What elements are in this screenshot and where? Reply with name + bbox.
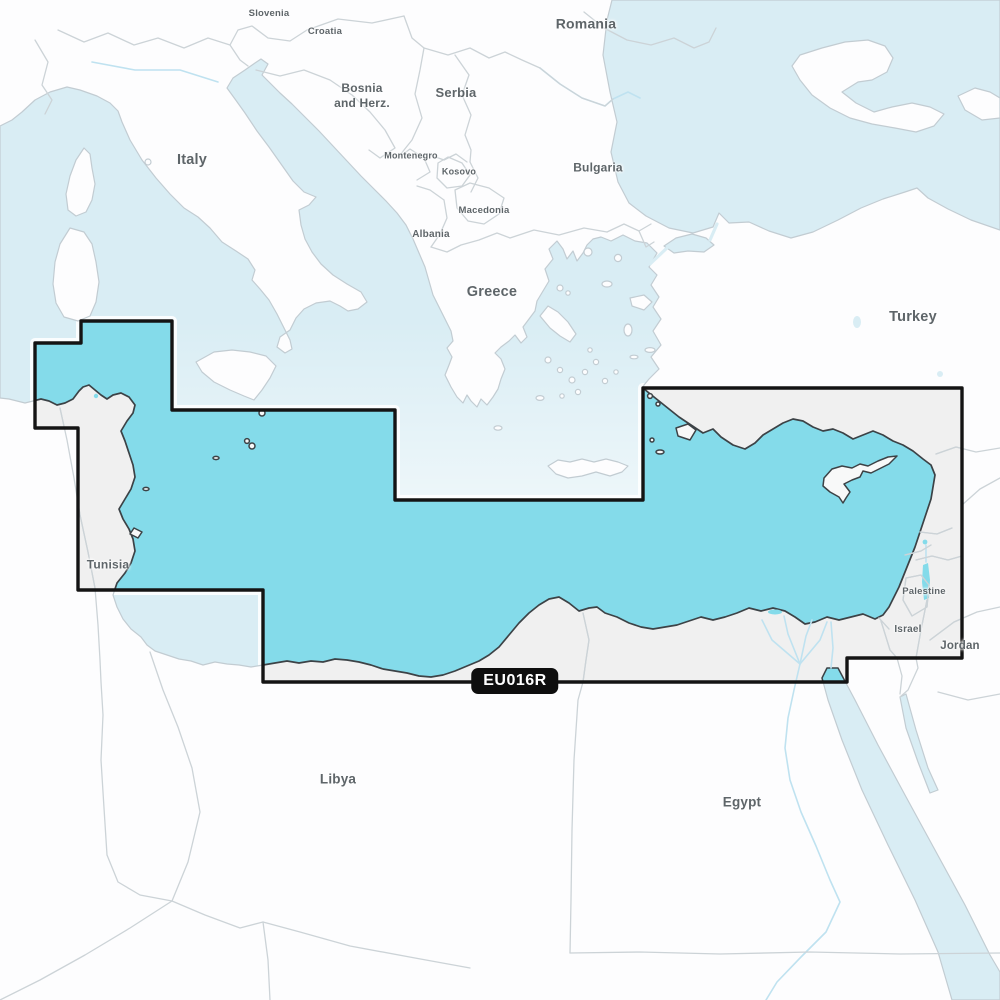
label-serbia: Serbia bbox=[436, 85, 477, 101]
label-jordan: Jordan bbox=[940, 639, 980, 653]
label-montenegro: Montenegro bbox=[384, 150, 438, 161]
label-albania: Albania bbox=[412, 229, 450, 242]
label-croatia: Croatia bbox=[308, 26, 342, 38]
label-palestine: Palestine bbox=[902, 586, 946, 598]
label-greece: Greece bbox=[467, 283, 517, 301]
label-libya: Libya bbox=[320, 772, 356, 789]
label-bulgaria: Bulgaria bbox=[573, 161, 623, 176]
label-egypt: Egypt bbox=[723, 795, 762, 812]
label-slovenia: Slovenia bbox=[249, 8, 290, 20]
label-italy: Italy bbox=[177, 151, 207, 169]
lake-anatolia bbox=[937, 371, 943, 377]
label-tunisia: Tunisia bbox=[87, 558, 130, 573]
label-romania: Romania bbox=[556, 15, 617, 33]
label-kosovo: Kosovo bbox=[442, 166, 476, 177]
label-bosnia: Bosnia and Herz. bbox=[334, 81, 390, 111]
coverage-map: EU016R SloveniaCroatiaBosnia and Herz.Se… bbox=[0, 0, 1000, 1000]
region-code-badge: EU016R bbox=[471, 668, 558, 694]
lake-tuz bbox=[853, 316, 861, 328]
label-israel: Israel bbox=[894, 624, 921, 637]
map-canvas bbox=[0, 0, 1000, 1000]
label-turkey: Turkey bbox=[889, 308, 937, 326]
label-macedonia: Macedonia bbox=[459, 205, 510, 217]
